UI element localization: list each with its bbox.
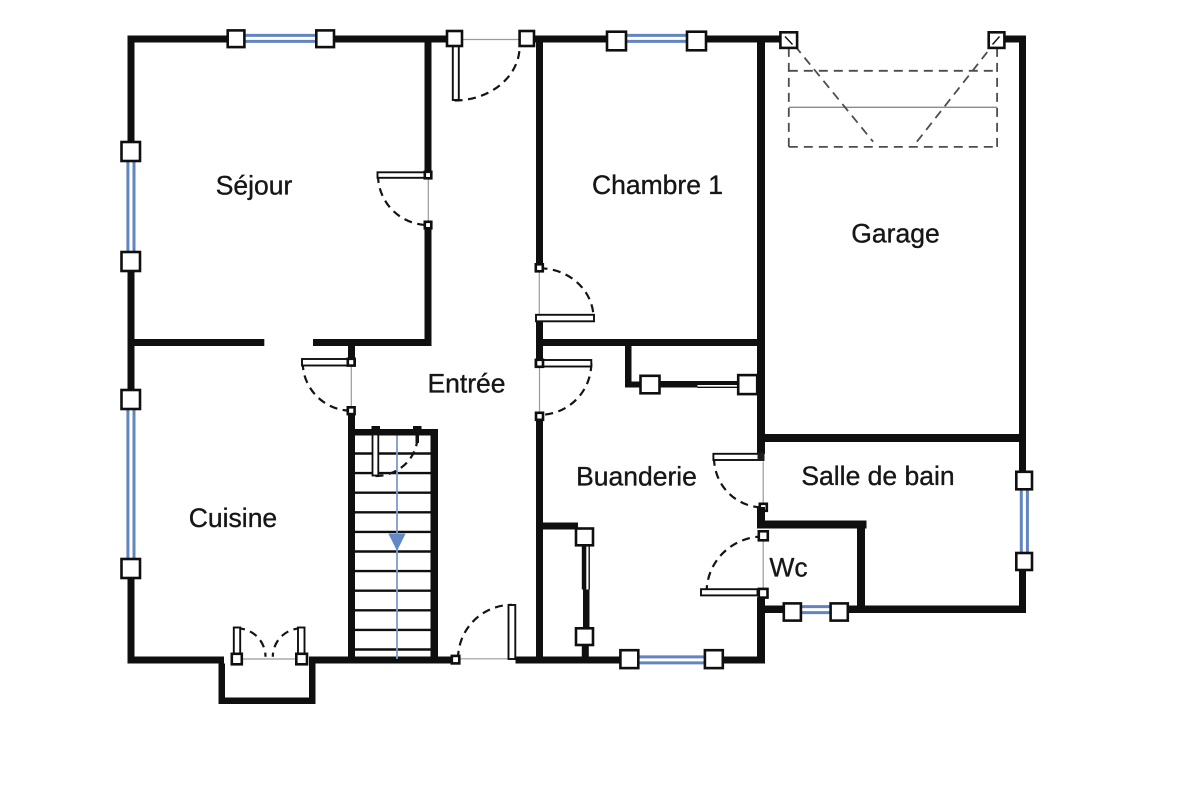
svg-text:Chambre 1: Chambre 1 [592, 170, 723, 200]
svg-text:Cuisine: Cuisine [189, 503, 277, 533]
svg-text:Garage: Garage [851, 218, 939, 248]
svg-text:Entrée: Entrée [427, 369, 505, 399]
svg-text:Wc: Wc [769, 553, 807, 583]
svg-text:Salle de bain: Salle de bain [801, 461, 954, 491]
svg-text:Buanderie: Buanderie [576, 462, 697, 492]
svg-text:Séjour: Séjour [216, 171, 293, 201]
